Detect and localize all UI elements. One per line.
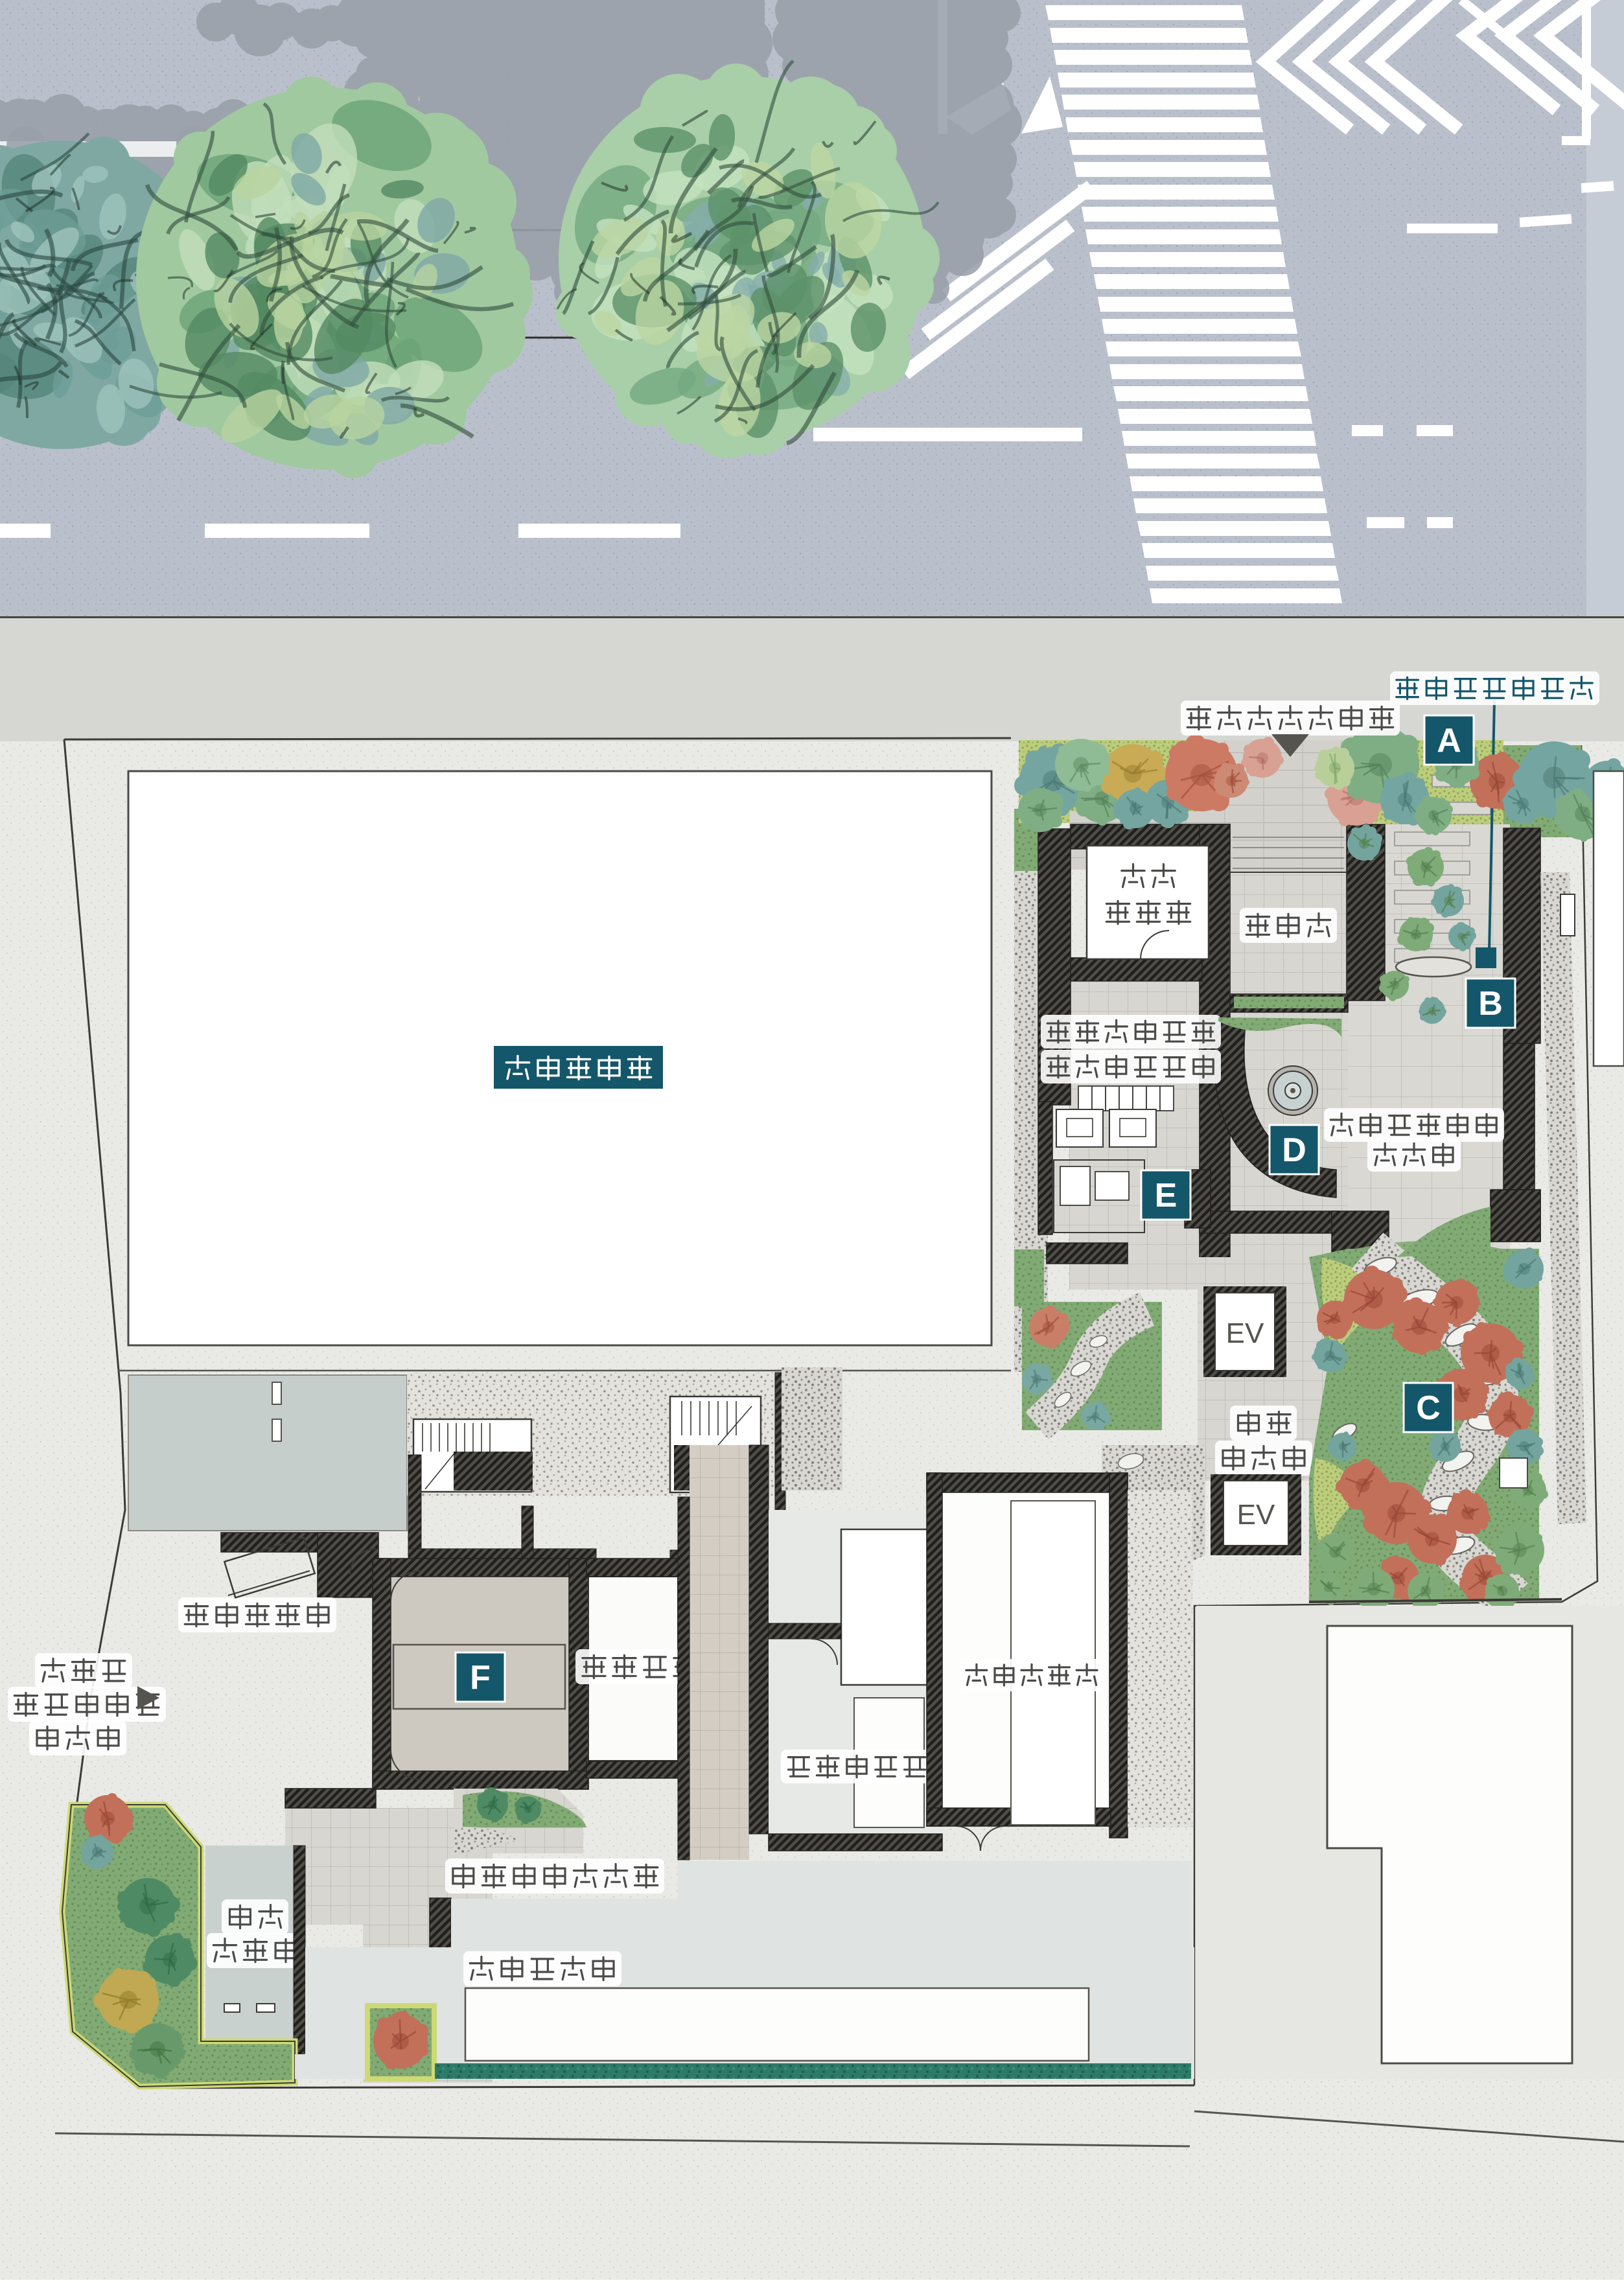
svg-text:EV: EV xyxy=(1226,1317,1264,1349)
svg-text:C: C xyxy=(1416,1389,1441,1427)
svg-text:EV: EV xyxy=(1237,1499,1275,1531)
svg-text:F: F xyxy=(470,1659,491,1697)
svg-text:B: B xyxy=(1478,985,1503,1023)
svg-text:D: D xyxy=(1282,1131,1306,1169)
svg-text:A: A xyxy=(1437,722,1461,759)
svg-text:E: E xyxy=(1155,1177,1177,1214)
